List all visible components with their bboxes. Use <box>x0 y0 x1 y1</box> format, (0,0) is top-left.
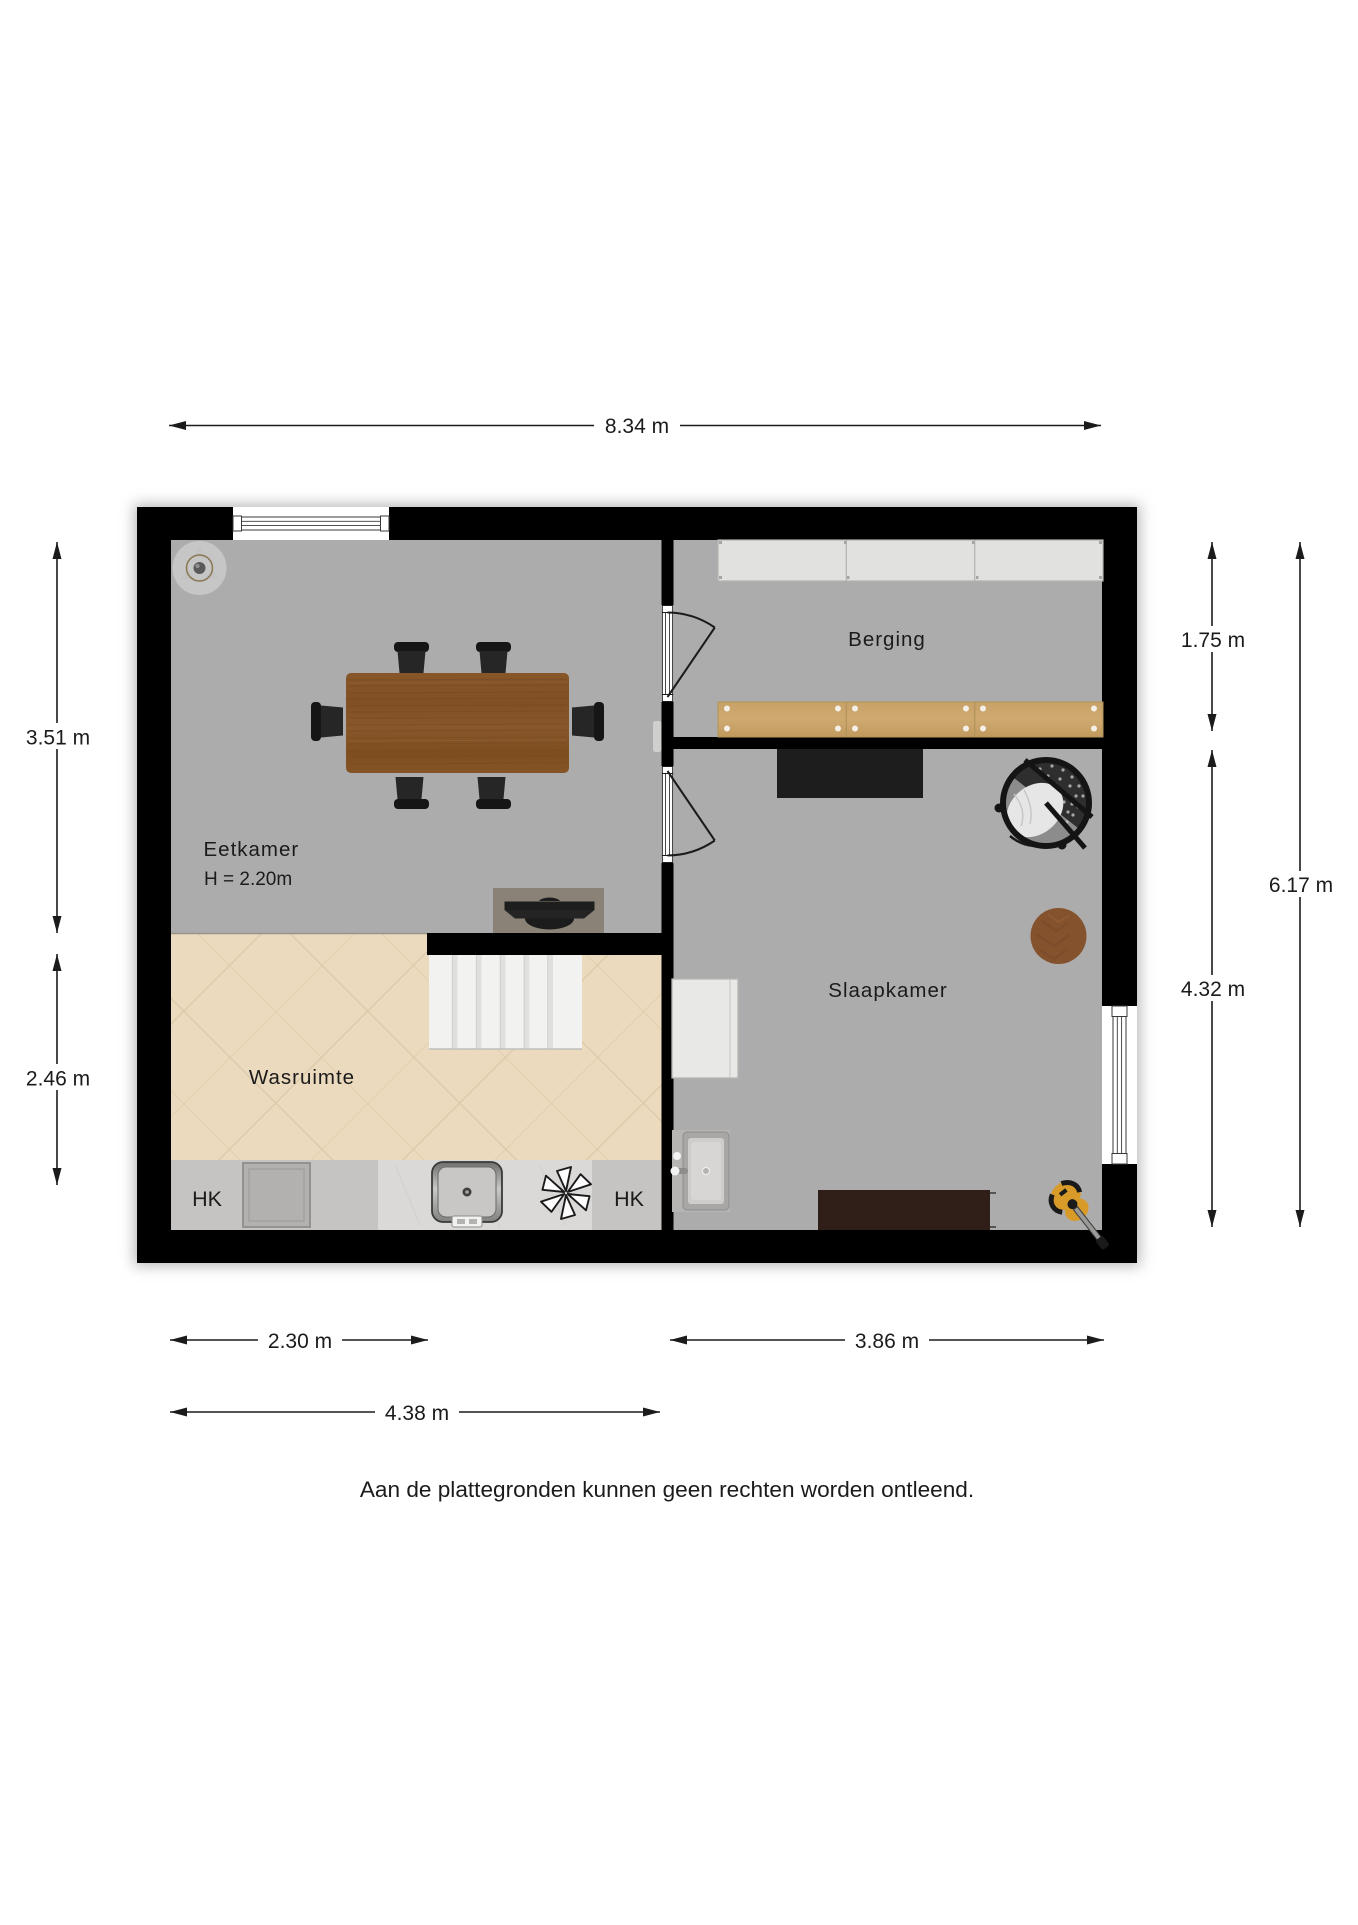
svg-text:HK: HK <box>614 1187 645 1211</box>
svg-text:HK: HK <box>192 1187 223 1211</box>
svg-text:6.17 m: 6.17 m <box>1269 874 1333 897</box>
svg-text:2.46 m: 2.46 m <box>26 1068 90 1091</box>
svg-text:3.86 m: 3.86 m <box>855 1330 919 1353</box>
svg-text:2.30 m: 2.30 m <box>268 1330 332 1353</box>
svg-text:4.38 m: 4.38 m <box>385 1402 449 1425</box>
svg-text:Berging: Berging <box>848 628 926 651</box>
svg-text:Aan de plattegronden kunnen ge: Aan de plattegronden kunnen geen rechten… <box>360 1477 974 1502</box>
svg-text:Slaapkamer: Slaapkamer <box>828 979 947 1002</box>
svg-text:H = 2.20m: H = 2.20m <box>204 869 292 890</box>
svg-text:3.51 m: 3.51 m <box>26 727 90 750</box>
svg-text:Eetkamer: Eetkamer <box>204 838 300 861</box>
svg-text:8.34 m: 8.34 m <box>605 415 669 438</box>
svg-text:1.75 m: 1.75 m <box>1181 629 1245 652</box>
svg-text:4.32 m: 4.32 m <box>1181 978 1245 1001</box>
svg-text:Wasruimte: Wasruimte <box>249 1066 355 1089</box>
